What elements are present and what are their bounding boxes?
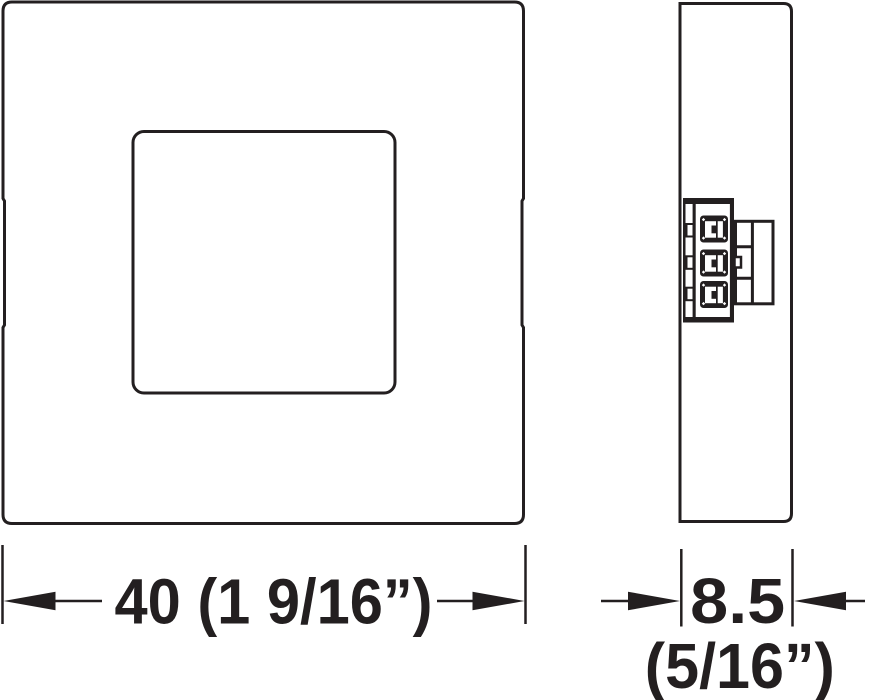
svg-text:8.5: 8.5: [690, 565, 785, 637]
svg-text:(5/16”): (5/16”): [645, 630, 835, 700]
svg-text:40 (1 9/16”): 40 (1 9/16”): [115, 566, 433, 638]
